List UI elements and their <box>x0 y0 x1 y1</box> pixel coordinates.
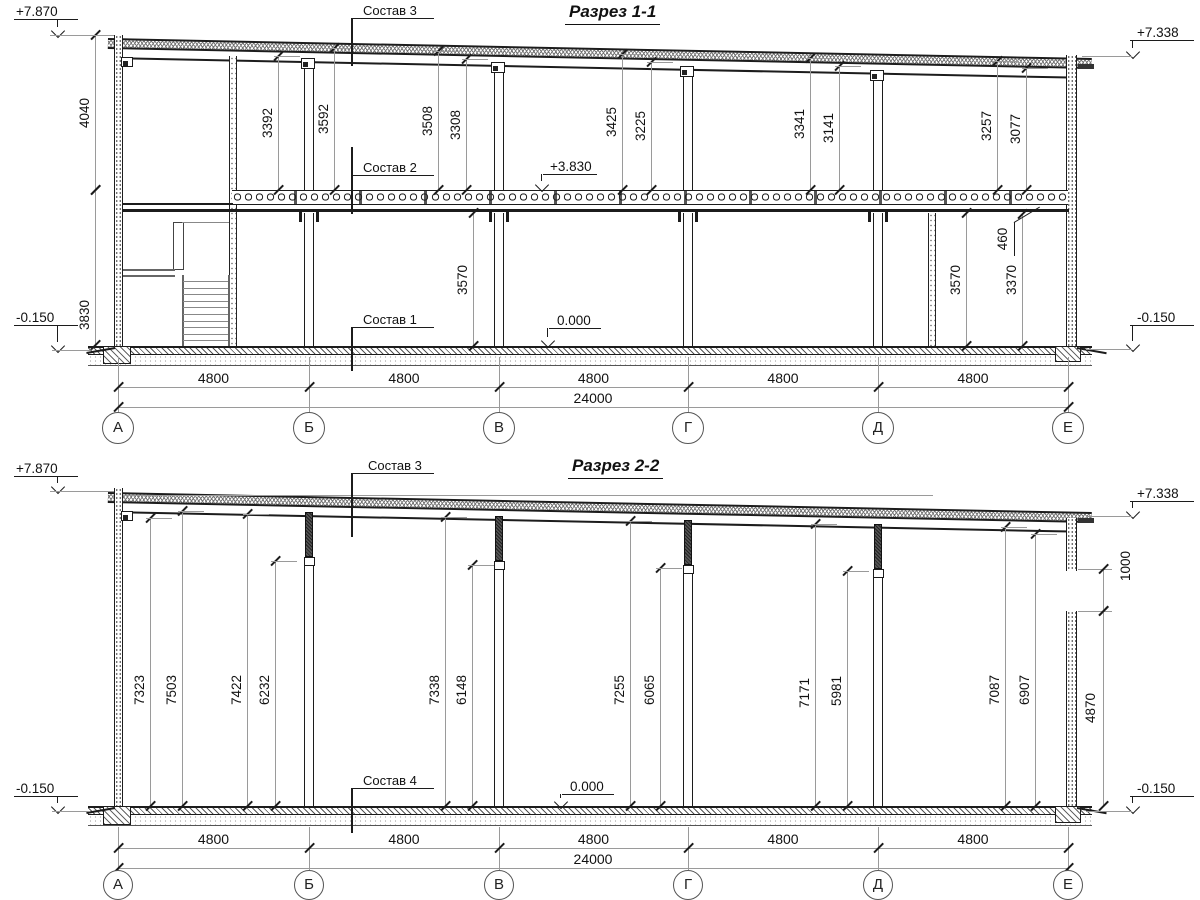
partition-de <box>928 213 936 347</box>
total-dimension-label: 24000 <box>558 851 628 867</box>
dim-extension <box>1001 527 1027 528</box>
dimension-label: 3425 <box>604 77 620 167</box>
dimension-line <box>1035 534 1036 806</box>
composition-flag-line <box>351 147 353 214</box>
composition-flag-line <box>351 473 353 537</box>
bay-dimension-label: 4800 <box>758 831 808 847</box>
column-head-square <box>873 569 884 578</box>
dimension-label: 7087 <box>987 645 1003 735</box>
dimension-label: 3392 <box>260 78 276 168</box>
elevation-shelf <box>1130 501 1194 502</box>
stair-step-line <box>183 334 228 335</box>
stair-step-line <box>183 321 228 322</box>
elevation-shelf <box>14 325 78 326</box>
dimension-label: 3141 <box>821 83 837 173</box>
bay-dimension-label: 4800 <box>189 370 239 386</box>
column-full <box>873 578 883 806</box>
level-line <box>50 35 114 36</box>
dimension-line <box>150 518 151 806</box>
dim-chain-line <box>118 387 1068 388</box>
drawing-sheet: Разрез 1-1 Разрез 2-2 <box>0 0 1200 900</box>
wall-head-dot <box>123 61 128 66</box>
corbel <box>678 212 681 222</box>
dim-extension <box>1031 534 1057 535</box>
composition-flag-line <box>351 788 353 833</box>
floor-beam-line <box>123 209 1069 212</box>
column-1f <box>494 213 504 347</box>
elevation-label: +7.338 <box>1137 486 1179 501</box>
corbel <box>489 212 492 222</box>
wall-head-dot <box>123 515 128 520</box>
ground-slab <box>88 806 1092 815</box>
dim-extension <box>178 511 204 512</box>
elevation-label: +3.830 <box>550 159 592 174</box>
elevation-label: +7.338 <box>1137 25 1179 40</box>
stair-step-line <box>183 288 228 289</box>
corbel <box>506 212 509 222</box>
axis-bubble: Е <box>1052 412 1084 444</box>
elevation-label: 0.000 <box>570 779 604 794</box>
column-head-block <box>305 512 313 557</box>
stair-step-line <box>183 340 228 341</box>
wall-left <box>114 488 123 807</box>
leader-label: 460 <box>995 194 1011 284</box>
column-2f <box>494 64 504 190</box>
dimension-line <box>445 517 446 806</box>
level-line <box>52 350 90 351</box>
dimension-label: 3341 <box>792 79 808 169</box>
dimension-line <box>247 514 248 806</box>
axis-bubble: Г <box>673 870 703 900</box>
dimension-line <box>1103 611 1104 806</box>
composition-underline <box>352 788 434 789</box>
dimension-label: 3257 <box>979 81 995 171</box>
corbel <box>885 212 888 222</box>
dimension-line <box>472 565 473 806</box>
elevation-shelf <box>14 796 78 797</box>
leader-underline <box>1014 222 1015 256</box>
composition-underline <box>352 473 434 474</box>
composition-label: Состав 1 <box>363 312 417 327</box>
axis-bubble: Д <box>862 412 894 444</box>
dimension-line <box>334 48 335 190</box>
dimension-label: 3308 <box>448 80 464 170</box>
window-ext-line <box>1078 569 1112 570</box>
level-line <box>1086 516 1132 517</box>
stair-top-line <box>182 222 229 223</box>
dimension-line <box>630 521 631 806</box>
ground-slab <box>88 346 1092 355</box>
elevation-label: -0.150 <box>1137 310 1175 325</box>
dimension-line <box>839 66 840 190</box>
dimension-line <box>182 511 183 806</box>
elevation-shelf <box>1130 796 1194 797</box>
window-ext-line <box>1078 611 1112 612</box>
dimension-label: 4040 <box>77 68 93 158</box>
stair-step-line <box>183 281 228 282</box>
axis-bubble: Б <box>293 412 325 444</box>
level-line <box>1086 811 1132 812</box>
dim-extension <box>993 61 1019 62</box>
level-line <box>52 811 90 812</box>
stair-step-line <box>183 307 228 308</box>
column-2f <box>683 68 693 190</box>
level-ext-line <box>123 495 933 496</box>
stair-post <box>173 222 184 270</box>
elevation-shelf <box>1130 325 1194 326</box>
wall-left <box>114 35 123 347</box>
dimension-line <box>815 524 816 806</box>
dim-extension <box>647 62 673 63</box>
stair-rail <box>182 275 184 346</box>
elevation-label: +7.870 <box>16 461 58 476</box>
roof-fascia <box>1078 64 1094 69</box>
dim-chain-line <box>118 848 1068 849</box>
elevation-shelf <box>14 476 78 477</box>
column-head-block <box>684 520 692 565</box>
dimension-line <box>651 62 652 190</box>
dimension-line <box>660 568 661 806</box>
dim-extension <box>441 517 467 518</box>
column-full <box>494 570 504 806</box>
axis-bubble: А <box>102 412 134 444</box>
dimension-label: 3508 <box>420 76 436 166</box>
dim-extension <box>806 58 832 59</box>
dimension-label: 5981 <box>829 646 845 736</box>
stair-step-line <box>183 314 228 315</box>
elevation-shelf <box>549 328 601 329</box>
dimension-label: 6232 <box>257 645 273 735</box>
level-line <box>50 491 114 492</box>
bay-dimension-label: 4800 <box>569 831 619 847</box>
dimension-label: 6907 <box>1017 645 1033 735</box>
bay-dimension-label: 4800 <box>379 370 429 386</box>
corbel <box>316 212 319 222</box>
elevation-label: -0.150 <box>1137 781 1175 796</box>
dim-extension <box>656 568 682 569</box>
wall-right-above-window <box>1066 518 1077 571</box>
dim-extension <box>462 59 488 60</box>
dim-extension <box>274 56 300 57</box>
dimension-line <box>1026 68 1027 190</box>
composition-underline <box>352 18 434 19</box>
column-head-square <box>304 557 315 566</box>
bay-dimension-label: 4800 <box>948 831 998 847</box>
composition-label: Состав 2 <box>363 160 417 175</box>
elevation-label: 0.000 <box>557 313 591 328</box>
dimension-line <box>95 190 96 345</box>
column-head-block <box>874 524 882 569</box>
column-full <box>304 566 314 806</box>
dim-extension <box>243 514 269 515</box>
dimension-line <box>473 213 474 346</box>
composition-flag-line <box>351 18 353 66</box>
bay-dimension-label: 4800 <box>379 831 429 847</box>
corbel <box>868 212 871 222</box>
axis-bubble: В <box>483 412 515 444</box>
section2-roof <box>107 492 1091 542</box>
dimension-line <box>1005 527 1006 806</box>
dimension-line <box>810 58 811 190</box>
dimension-label: 7323 <box>132 645 148 735</box>
column-head-square <box>494 561 505 570</box>
column-1f <box>873 213 883 347</box>
dimension-label: 3592 <box>316 74 332 164</box>
dimension-label: 7171 <box>797 648 813 738</box>
dim-extension <box>835 66 861 67</box>
column-2f <box>873 72 883 190</box>
stair-step-line <box>183 294 228 295</box>
stair-step-line <box>183 301 228 302</box>
section2-title: Разрез 2-2 <box>568 456 663 479</box>
elevation-label: +7.870 <box>16 4 58 19</box>
column-1f <box>304 213 314 347</box>
column-head-dot <box>303 62 308 67</box>
dim-chain-line <box>118 407 1068 408</box>
roof-deck <box>108 492 1092 523</box>
ground-base <box>88 815 1092 826</box>
dimension-label: 3225 <box>633 81 649 171</box>
composition-underline <box>352 175 434 176</box>
dimension-label: 1000 <box>1118 521 1134 611</box>
dimension-line <box>847 571 848 806</box>
dim-chain-line <box>118 868 1068 869</box>
dimension-line <box>275 561 276 806</box>
section1-roof <box>107 38 1091 88</box>
dim-extension <box>1022 68 1048 69</box>
column-head-block <box>495 516 503 561</box>
dimension-label: 3570 <box>948 235 964 325</box>
composition-label: Состав 3 <box>368 458 422 473</box>
corbel <box>299 212 302 222</box>
dimension-label: 7422 <box>229 645 245 735</box>
axis-bubble: Г <box>672 412 704 444</box>
dim-extension <box>271 561 297 562</box>
bay-dimension-label: 4800 <box>758 370 808 386</box>
axis-bubble: А <box>103 870 133 900</box>
dimension-line <box>997 61 998 190</box>
bay-dimension-label: 4800 <box>948 370 998 386</box>
dimension-label: 7503 <box>164 645 180 735</box>
bay-dimension-label: 4800 <box>569 370 619 386</box>
stair-rail <box>228 275 230 346</box>
composition-label: Состав 3 <box>363 3 417 18</box>
level-line <box>1082 56 1132 57</box>
dim-extension <box>626 521 652 522</box>
axis-bubble: В <box>484 870 514 900</box>
dimension-line <box>622 54 623 190</box>
dimension-label: 3830 <box>77 270 93 360</box>
dimension-line <box>1103 569 1104 611</box>
dimension-label: 6065 <box>642 645 658 735</box>
stair-landing-line <box>123 269 175 271</box>
dimension-label: 7338 <box>427 645 443 735</box>
roof-fascia <box>1078 518 1094 523</box>
stair-step-line <box>183 327 228 328</box>
column-2f <box>304 60 314 190</box>
elevation-shelf <box>1130 40 1194 41</box>
elevation-shelf <box>14 19 78 20</box>
dimension-line <box>278 56 279 190</box>
dimension-line <box>438 51 439 190</box>
axis-bubble: Е <box>1053 870 1083 900</box>
section1-title: Разрез 1-1 <box>565 2 660 25</box>
axis-bubble: Д <box>863 870 893 900</box>
dim-extension <box>468 565 494 566</box>
column-head-dot <box>682 70 687 75</box>
dimension-line <box>466 59 467 190</box>
dim-extension <box>618 54 644 55</box>
elevation-label: -0.150 <box>16 781 54 796</box>
column-head-square <box>683 565 694 574</box>
dimension-label: 7255 <box>612 645 628 735</box>
dimension-label: 6148 <box>454 645 470 735</box>
dimension-line <box>1022 214 1023 346</box>
column-head-dot <box>493 66 498 71</box>
dimension-label: 4870 <box>1083 663 1099 753</box>
roof-deck <box>108 38 1092 69</box>
bay-dimension-label: 4800 <box>189 831 239 847</box>
column-head-dot <box>872 74 877 79</box>
dim-extension <box>146 518 172 519</box>
elevation-shelf <box>543 174 597 175</box>
stair-bay-slab-line <box>123 203 233 205</box>
level-line <box>1086 349 1132 350</box>
elevation-shelf <box>562 794 614 795</box>
dim-extension <box>811 524 837 525</box>
total-dimension-label: 24000 <box>558 390 628 406</box>
corbel <box>695 212 698 222</box>
dimension-line <box>966 213 967 346</box>
composition-underline <box>352 327 434 328</box>
dimension-line <box>95 35 96 190</box>
column-1f <box>683 213 693 347</box>
dimension-label: 3570 <box>455 235 471 325</box>
elevation-label: -0.150 <box>16 310 54 325</box>
column-full <box>683 574 693 806</box>
ground-base <box>88 355 1092 366</box>
dim-extension <box>843 571 869 572</box>
dimension-label: 3077 <box>1008 84 1024 174</box>
stair-landing-line <box>123 275 175 277</box>
composition-label: Состав 4 <box>363 773 417 788</box>
axis-bubble: Б <box>294 870 324 900</box>
composition-flag-line <box>351 327 353 371</box>
wall-right-below-window <box>1066 611 1077 807</box>
dim-extension <box>434 51 460 52</box>
